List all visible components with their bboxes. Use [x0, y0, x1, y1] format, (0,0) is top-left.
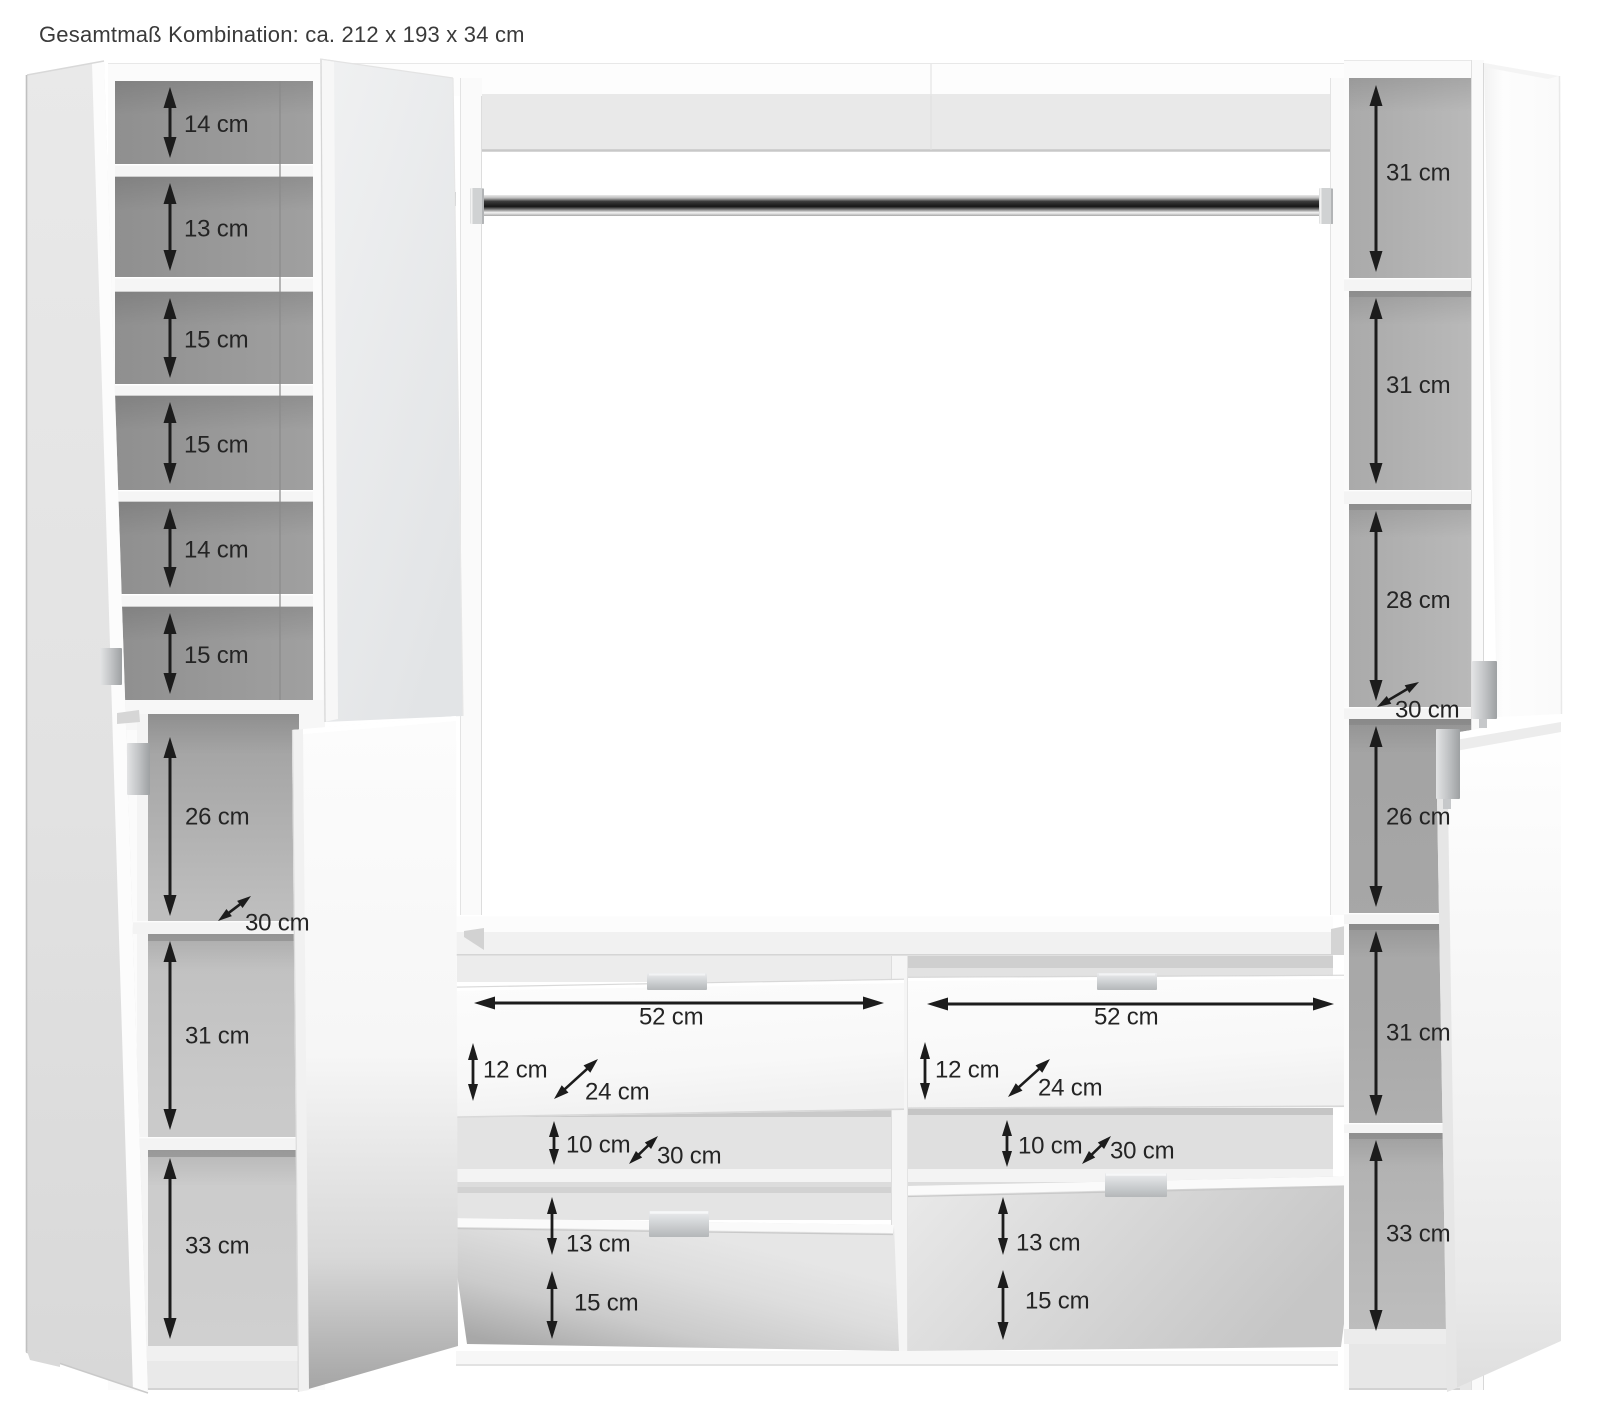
svg-text:30 cm: 30 cm	[1395, 697, 1459, 724]
svg-text:24 cm: 24 cm	[585, 1079, 649, 1106]
svg-text:26 cm: 26 cm	[1386, 804, 1450, 831]
svg-text:15 cm: 15 cm	[184, 642, 248, 669]
svg-text:10 cm: 10 cm	[1018, 1133, 1082, 1160]
svg-text:30 cm: 30 cm	[657, 1143, 721, 1170]
svg-text:12 cm: 12 cm	[483, 1057, 547, 1084]
svg-text:12 cm: 12 cm	[935, 1057, 999, 1084]
svg-text:31 cm: 31 cm	[185, 1023, 249, 1050]
svg-text:13 cm: 13 cm	[184, 216, 248, 243]
svg-text:30 cm: 30 cm	[245, 910, 309, 937]
svg-text:33 cm: 33 cm	[1386, 1221, 1450, 1248]
svg-text:30 cm: 30 cm	[1110, 1138, 1174, 1165]
svg-text:33 cm: 33 cm	[185, 1233, 249, 1260]
svg-text:52 cm: 52 cm	[639, 1004, 703, 1031]
svg-text:15 cm: 15 cm	[184, 432, 248, 459]
svg-text:13 cm: 13 cm	[1016, 1230, 1080, 1257]
svg-text:14 cm: 14 cm	[184, 111, 248, 138]
svg-text:15 cm: 15 cm	[1025, 1288, 1089, 1315]
svg-text:24 cm: 24 cm	[1038, 1075, 1102, 1102]
svg-text:15 cm: 15 cm	[184, 327, 248, 354]
svg-text:28 cm: 28 cm	[1386, 587, 1450, 614]
svg-text:14 cm: 14 cm	[184, 537, 248, 564]
svg-text:15 cm: 15 cm	[574, 1290, 638, 1317]
svg-text:13 cm: 13 cm	[566, 1231, 630, 1258]
svg-text:31 cm: 31 cm	[1386, 160, 1450, 187]
svg-text:52 cm: 52 cm	[1094, 1004, 1158, 1031]
svg-text:10 cm: 10 cm	[566, 1132, 630, 1159]
svg-text:26 cm: 26 cm	[185, 804, 249, 831]
svg-text:31 cm: 31 cm	[1386, 1020, 1450, 1047]
svg-text:31 cm: 31 cm	[1386, 372, 1450, 399]
